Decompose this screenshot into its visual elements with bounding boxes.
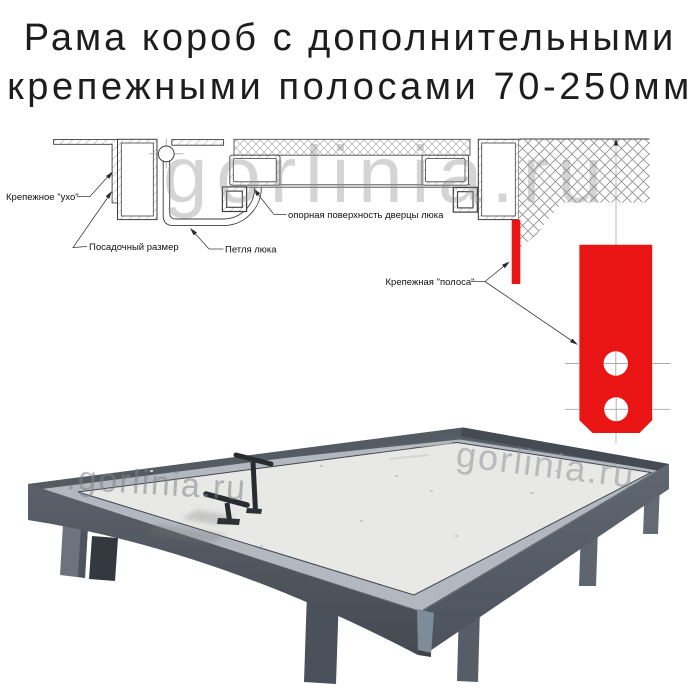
svg-text:Крепежное "ухо": Крепежное "ухо": [6, 192, 79, 203]
svg-text:Петля люка: Петля люка: [225, 245, 277, 256]
svg-text:Крепежная "полоса": Крепежная "полоса": [386, 277, 475, 288]
svg-text:Посадочный размер: Посадочный размер: [89, 242, 179, 253]
svg-text:gorlinia.ru: gorlinia.ru: [163, 130, 611, 219]
